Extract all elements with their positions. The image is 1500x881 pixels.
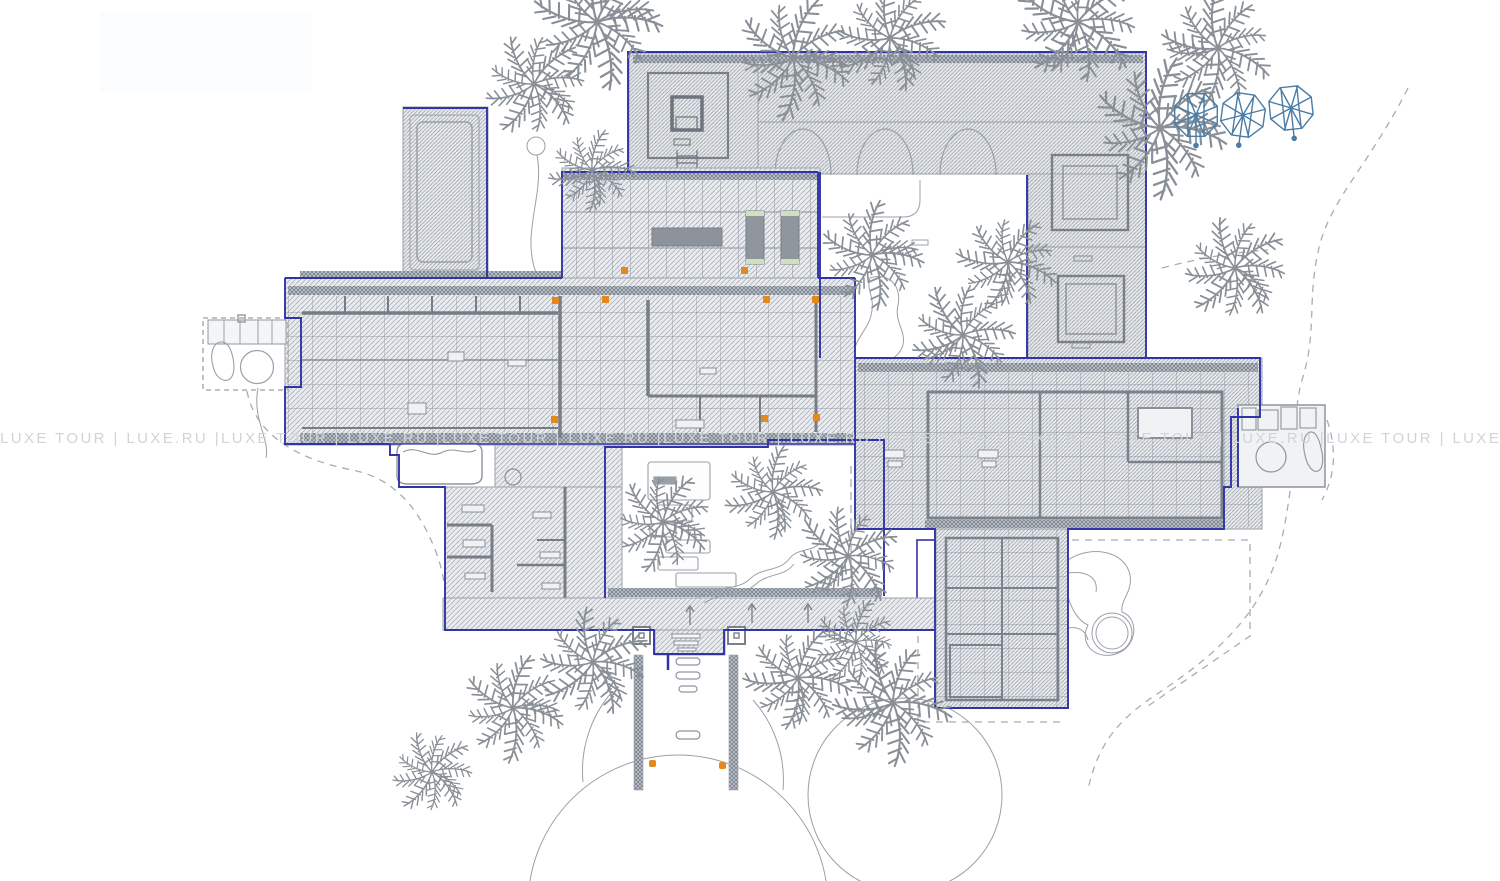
beach-umbrellas <box>1175 84 1316 151</box>
strip-east <box>1028 155 1146 358</box>
planter-northwest <box>300 107 562 280</box>
stepping-stones-path <box>676 658 700 739</box>
palm-tree-icon <box>1144 0 1295 125</box>
terrace-north <box>629 53 1146 175</box>
palm-tree-icon <box>441 636 583 779</box>
site-plan-canvas: LUXE TOUR | LUXE.RU |LUXE TOUR | LUXE.RU… <box>0 0 1500 881</box>
palm-tree-icon <box>1163 196 1306 338</box>
site-plan-drawing <box>0 0 1500 881</box>
palm-tree-icon <box>373 712 491 829</box>
pool-west <box>397 443 482 484</box>
beach-umbrella-icon <box>1268 84 1316 143</box>
building-east <box>855 358 1262 529</box>
bathroom-west <box>203 315 288 390</box>
wing-southeast <box>917 529 1068 708</box>
building-main <box>285 278 855 445</box>
